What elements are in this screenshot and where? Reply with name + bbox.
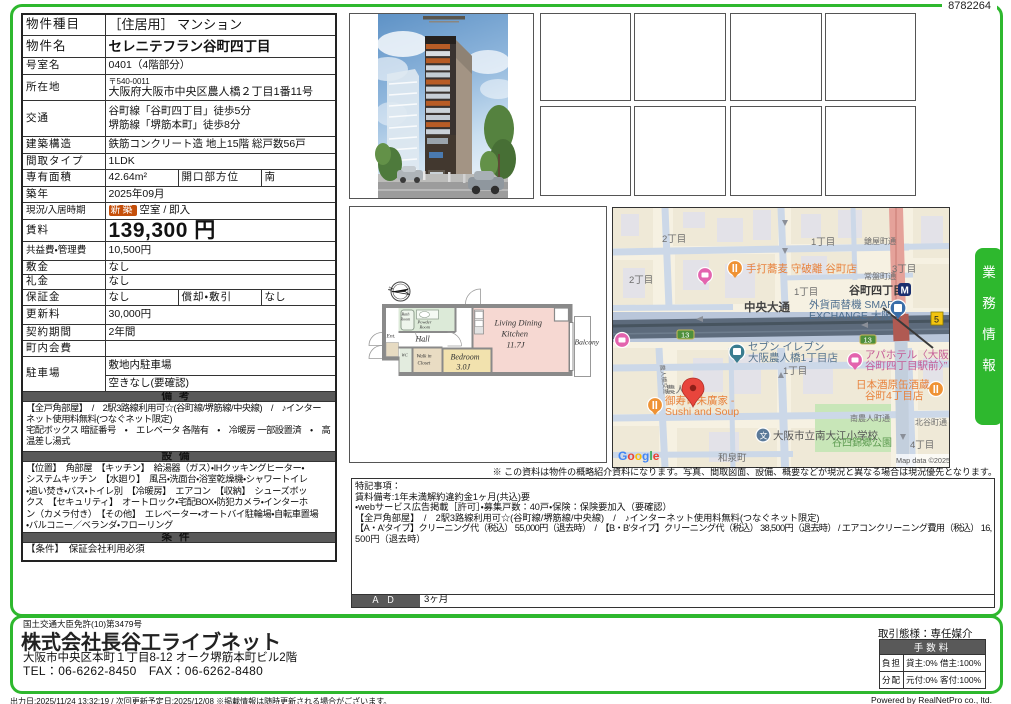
svg-text:Living Dining: Living Dining xyxy=(494,318,542,328)
svg-text:2丁目: 2丁目 xyxy=(662,234,686,245)
svg-text:鎗屋町通: 鎗屋町通 xyxy=(864,236,896,246)
svg-text:1丁目: 1丁目 xyxy=(794,287,818,298)
svg-text:M: M xyxy=(901,286,909,297)
svg-text:Hall: Hall xyxy=(415,335,431,344)
svg-text:WC: WC xyxy=(402,353,408,358)
svg-text:Sushi and Soup: Sushi and Soup xyxy=(665,406,739,418)
svg-text:5: 5 xyxy=(934,315,939,325)
svg-text:Balcony: Balcony xyxy=(575,338,600,347)
svg-text:文: 文 xyxy=(760,431,768,441)
svg-text:谷四錦郷公園: 谷四錦郷公園 xyxy=(832,436,892,449)
svg-text:3.0J: 3.0J xyxy=(456,363,471,372)
svg-text:1丁目: 1丁目 xyxy=(811,237,835,248)
svg-text:13: 13 xyxy=(681,331,689,340)
svg-text:Kitchen: Kitchen xyxy=(501,329,528,339)
svg-text:EXCHANGE 大阪…: EXCHANGE 大阪… xyxy=(809,309,902,322)
svg-text:北谷町通: 北谷町通 xyxy=(915,417,947,427)
svg-text:Walk in: Walk in xyxy=(417,355,432,360)
svg-text:4丁目: 4丁目 xyxy=(910,440,934,451)
svg-text:Room: Room xyxy=(419,325,431,330)
svg-text:Bedroom: Bedroom xyxy=(451,353,480,362)
svg-text:中央大通: 中央大通 xyxy=(744,300,790,314)
svg-text:谷町四丁目駅前〉”: 谷町四丁目駅前〉” xyxy=(865,359,948,372)
svg-text:常盤町通: 常盤町通 xyxy=(864,271,896,281)
svg-text:Closet: Closet xyxy=(418,362,431,367)
svg-text:谷町四丁目: 谷町四丁目 xyxy=(849,283,904,297)
svg-text:2丁目: 2丁目 xyxy=(629,275,653,286)
svg-text:1丁目: 1丁目 xyxy=(783,366,807,377)
svg-text:谷町4丁目店: 谷町4丁目店 xyxy=(865,390,923,402)
svg-text:Ent.: Ent. xyxy=(386,334,396,340)
svg-text:13: 13 xyxy=(864,336,872,345)
svg-text:11.7J: 11.7J xyxy=(507,340,526,350)
svg-text:南農人町通: 南農人町通 xyxy=(850,413,890,423)
svg-text:Google: Google xyxy=(618,449,660,463)
svg-text:和泉町: 和泉町 xyxy=(718,452,747,464)
svg-text:Room: Room xyxy=(400,317,411,322)
svg-text:大阪農人橋1丁目店: 大阪農人橋1丁目店 xyxy=(748,351,838,364)
svg-text:手打蕎麦 守破離 谷町店: 手打蕎麦 守破離 谷町店 xyxy=(746,262,857,275)
svg-text:Map data ©2025: Map data ©2025 xyxy=(896,456,949,465)
